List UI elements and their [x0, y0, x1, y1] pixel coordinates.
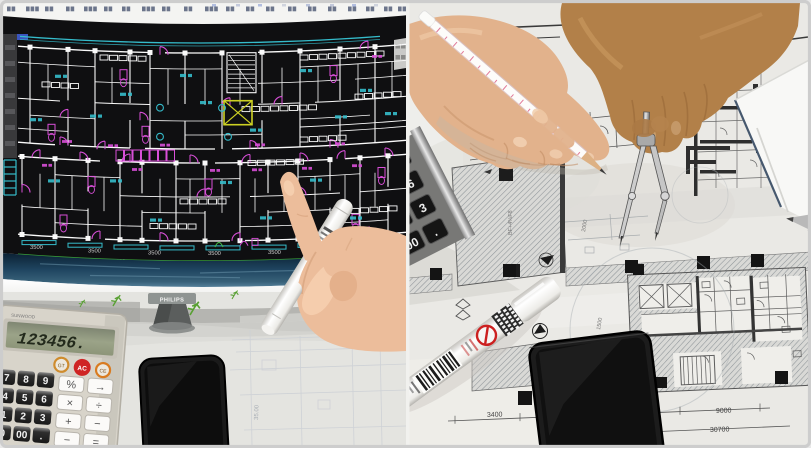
svg-text:BF+4%F8: BF+4%F8 [508, 210, 514, 235]
svg-text:÷: ÷ [95, 400, 102, 412]
svg-text:−: − [63, 434, 70, 446]
svg-text:3500: 3500 [268, 250, 281, 256]
svg-text:×: × [66, 397, 73, 409]
svg-text:AC: AC [77, 365, 87, 373]
svg-text:9000: 9000 [716, 407, 732, 415]
svg-text:−: − [94, 418, 101, 430]
svg-text:3500: 3500 [208, 251, 221, 257]
svg-text:30700: 30700 [710, 426, 730, 434]
svg-text:GT: GT [58, 363, 65, 370]
svg-text:→: → [94, 381, 106, 394]
svg-text:3500: 3500 [148, 250, 161, 256]
svg-text:00: 00 [16, 429, 28, 441]
svg-text:35.00: 35.00 [254, 404, 261, 420]
svg-text:3500: 3500 [88, 248, 101, 254]
svg-text:+: + [65, 416, 72, 428]
svg-text:PHILIPS: PHILIPS [160, 298, 185, 304]
svg-text:3400: 3400 [487, 411, 503, 419]
svg-text:3500: 3500 [30, 245, 43, 251]
svg-text:%: % [66, 379, 77, 392]
svg-text:CE: CE [99, 368, 107, 375]
